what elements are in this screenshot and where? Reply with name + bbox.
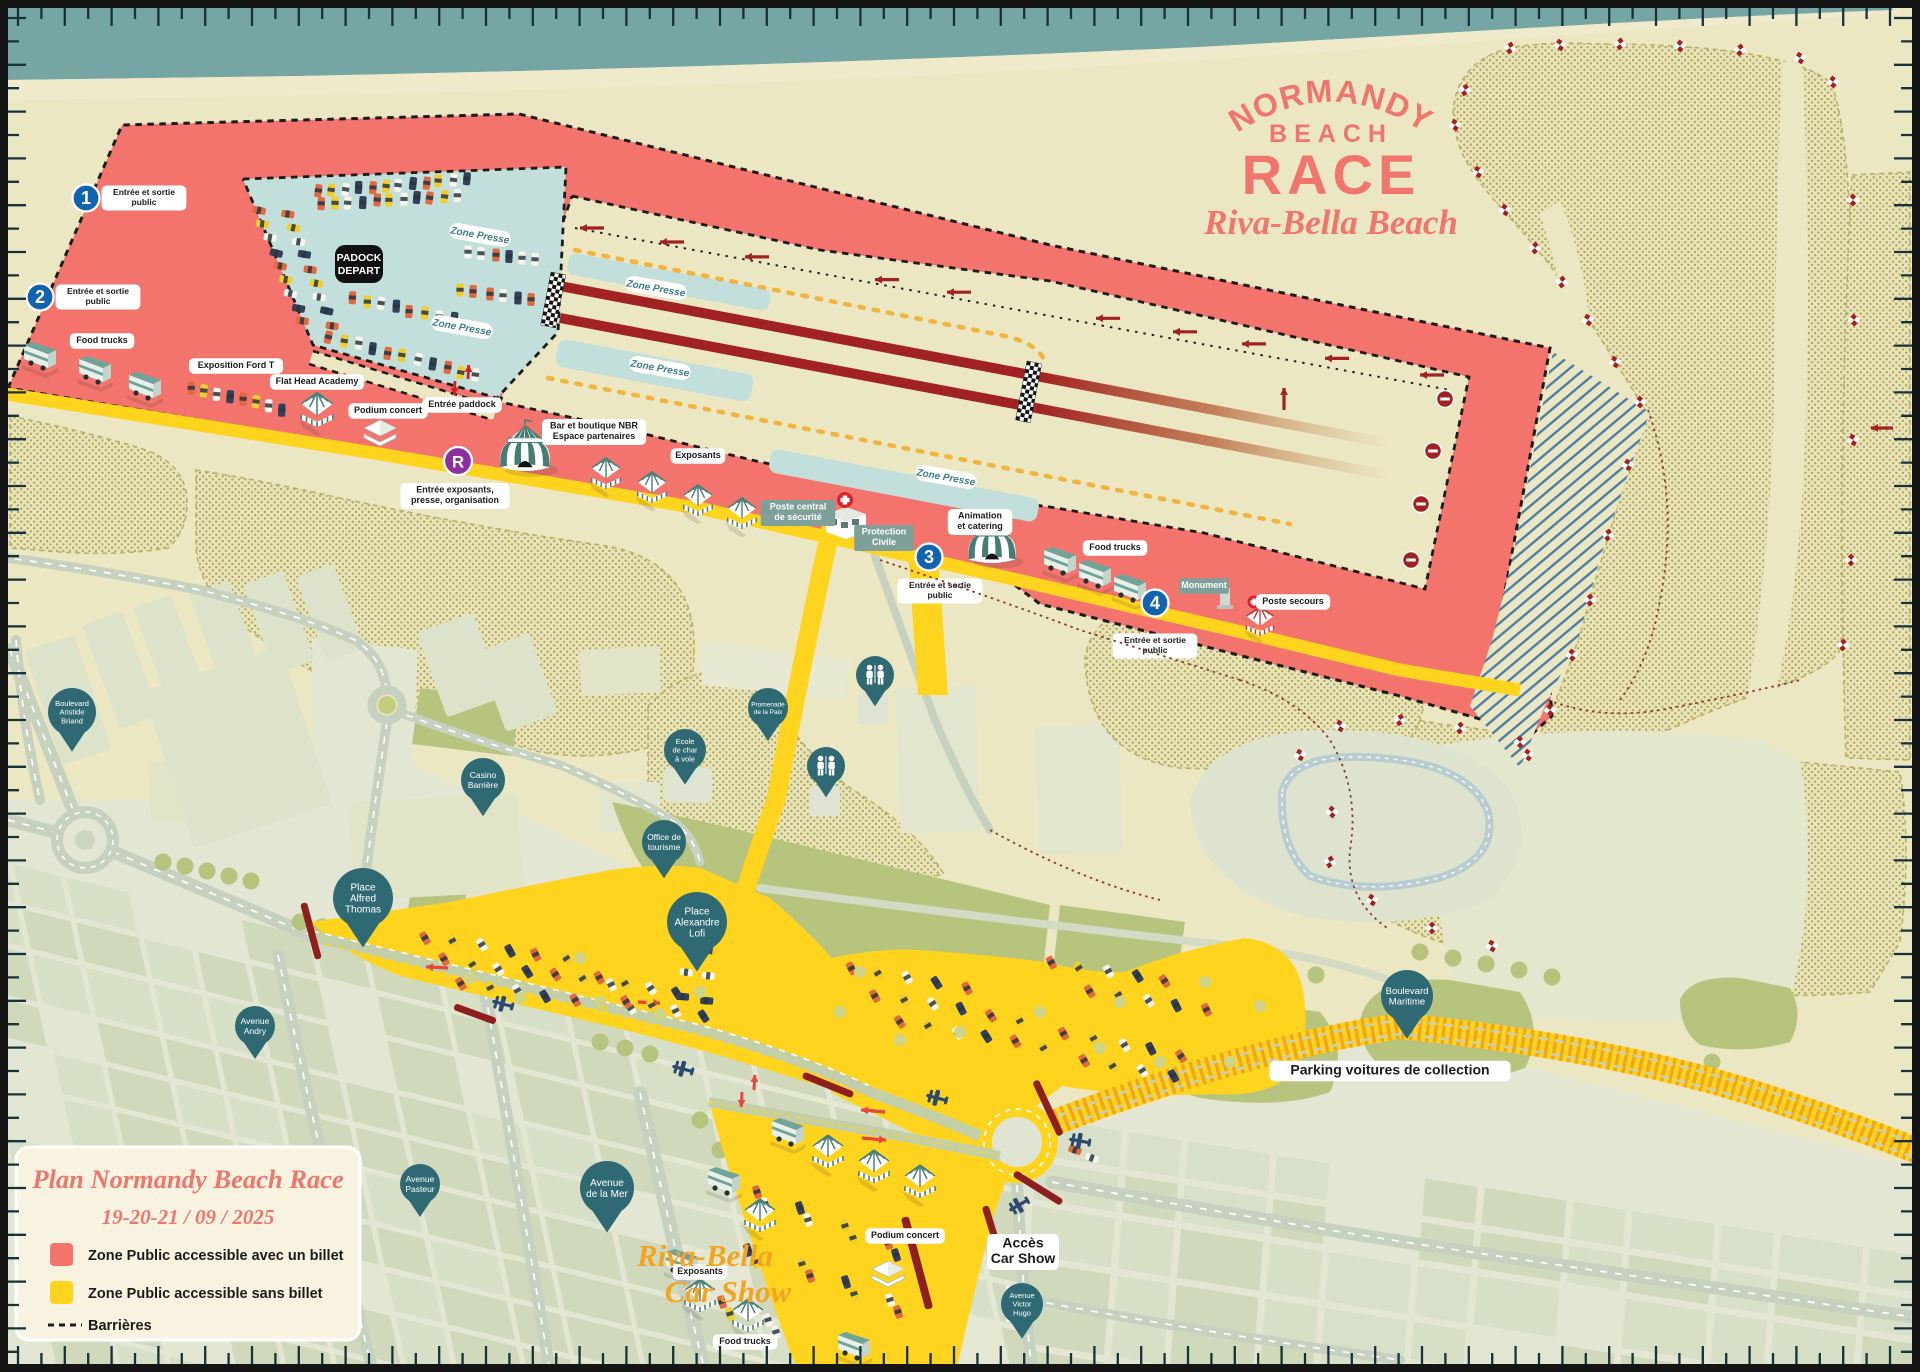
svg-text:de char: de char bbox=[672, 746, 698, 755]
svg-text:Civile: Civile bbox=[872, 537, 896, 547]
svg-text:1: 1 bbox=[81, 188, 91, 208]
svg-text:Place: Place bbox=[684, 906, 709, 917]
svg-text:Avenue: Avenue bbox=[1009, 1291, 1034, 1300]
svg-text:Food trucks: Food trucks bbox=[76, 335, 128, 345]
svg-text:Barrières: Barrières bbox=[88, 1318, 152, 1334]
svg-text:Victor: Victor bbox=[1012, 1300, 1032, 1309]
svg-text:4: 4 bbox=[1150, 593, 1160, 613]
svg-text:Entrée et sortie: Entrée et sortie bbox=[113, 187, 175, 197]
svg-text:à vole: à vole bbox=[675, 754, 695, 763]
svg-text:Alfred: Alfred bbox=[350, 894, 376, 905]
svg-text:Pasteur: Pasteur bbox=[405, 1184, 434, 1194]
svg-text:Exposition Ford T: Exposition Ford T bbox=[198, 360, 275, 370]
svg-text:Podium concert: Podium concert bbox=[871, 1230, 939, 1240]
svg-text:Espace partenaires: Espace partenaires bbox=[553, 431, 636, 441]
svg-text:Car Show: Car Show bbox=[665, 1274, 792, 1309]
svg-text:Flat Head Academy: Flat Head Academy bbox=[276, 376, 359, 386]
svg-text:Exposants: Exposants bbox=[675, 450, 721, 460]
svg-text:PADOCK: PADOCK bbox=[337, 252, 382, 264]
svg-text:Plan Normandy Beach Race: Plan Normandy Beach Race bbox=[31, 1164, 344, 1194]
svg-text:Bar et boutique NBR: Bar et boutique NBR bbox=[550, 421, 639, 431]
svg-text:Office de: Office de bbox=[647, 832, 681, 842]
svg-text:Food trucks: Food trucks bbox=[1089, 542, 1141, 552]
svg-text:Podium concert: Podium concert bbox=[354, 405, 422, 415]
svg-text:tourisme: tourisme bbox=[648, 842, 681, 852]
svg-text:Entrée et sortie: Entrée et sortie bbox=[1124, 635, 1186, 645]
svg-text:Promenade: Promenade bbox=[751, 701, 785, 708]
svg-text:Ecole: Ecole bbox=[676, 737, 695, 746]
svg-text:Car Show: Car Show bbox=[991, 1250, 1056, 1266]
svg-text:Riva-Bella Beach: Riva-Bella Beach bbox=[1203, 203, 1458, 242]
svg-text:Zone Public accessible sans bi: Zone Public accessible sans billet bbox=[88, 1286, 323, 1302]
svg-text:public: public bbox=[85, 296, 110, 306]
svg-text:Poste secours: Poste secours bbox=[1262, 596, 1324, 606]
svg-text:Andry: Andry bbox=[244, 1026, 267, 1036]
svg-text:Alexandre: Alexandre bbox=[674, 918, 719, 929]
svg-text:Entrée paddock: Entrée paddock bbox=[428, 399, 497, 409]
svg-text:presse, organisation: presse, organisation bbox=[411, 495, 499, 505]
svg-text:Riva-Bella: Riva-Bella bbox=[636, 1238, 773, 1273]
svg-text:DEPART: DEPART bbox=[338, 265, 381, 277]
svg-text:Aristide: Aristide bbox=[59, 708, 84, 717]
svg-text:de sécurité: de sécurité bbox=[774, 512, 822, 522]
svg-text:19-20-21 / 09 / 2025: 19-20-21 / 09 / 2025 bbox=[102, 1205, 275, 1229]
svg-text:Thomas: Thomas bbox=[345, 905, 381, 916]
svg-text:Zone Public accessible avec un: Zone Public accessible avec un billet bbox=[88, 1248, 344, 1264]
svg-text:Place: Place bbox=[350, 882, 375, 893]
svg-text:Entrée exposants,: Entrée exposants, bbox=[416, 485, 494, 495]
svg-text:Briand: Briand bbox=[61, 716, 83, 725]
svg-text:Avenue: Avenue bbox=[406, 1174, 435, 1184]
svg-text:R: R bbox=[452, 453, 464, 472]
svg-text:public: public bbox=[927, 590, 952, 600]
svg-text:Lofi: Lofi bbox=[689, 929, 705, 940]
svg-text:Entrée et sortie: Entrée et sortie bbox=[67, 286, 129, 296]
svg-text:Avenue: Avenue bbox=[590, 1178, 624, 1189]
svg-text:de la Mer: de la Mer bbox=[586, 1189, 628, 1200]
svg-text:Maritime: Maritime bbox=[1389, 997, 1425, 1008]
svg-text:Monument: Monument bbox=[1181, 580, 1227, 590]
svg-text:Hugo: Hugo bbox=[1013, 1308, 1031, 1317]
svg-text:Barrière: Barrière bbox=[468, 780, 499, 790]
svg-text:et catering: et catering bbox=[957, 521, 1003, 531]
svg-text:public: public bbox=[131, 197, 156, 207]
svg-text:Animation: Animation bbox=[958, 511, 1002, 521]
svg-text:de la Paix: de la Paix bbox=[754, 709, 783, 716]
svg-text:Boulevard: Boulevard bbox=[55, 699, 89, 708]
svg-text:Protection: Protection bbox=[862, 527, 907, 537]
svg-text:2: 2 bbox=[35, 287, 45, 307]
svg-text:Accès: Accès bbox=[1002, 1235, 1043, 1251]
svg-text:Avenue: Avenue bbox=[241, 1016, 270, 1026]
svg-text:RACE: RACE bbox=[1242, 143, 1421, 206]
svg-text:Boulevard: Boulevard bbox=[1386, 986, 1429, 997]
svg-text:Poste central: Poste central bbox=[770, 502, 827, 512]
svg-text:3: 3 bbox=[924, 547, 934, 567]
svg-text:Casino: Casino bbox=[470, 770, 497, 780]
svg-text:Food trucks: Food trucks bbox=[719, 1336, 771, 1346]
svg-text:Parking voitures de collection: Parking voitures de collection bbox=[1290, 1062, 1489, 1078]
